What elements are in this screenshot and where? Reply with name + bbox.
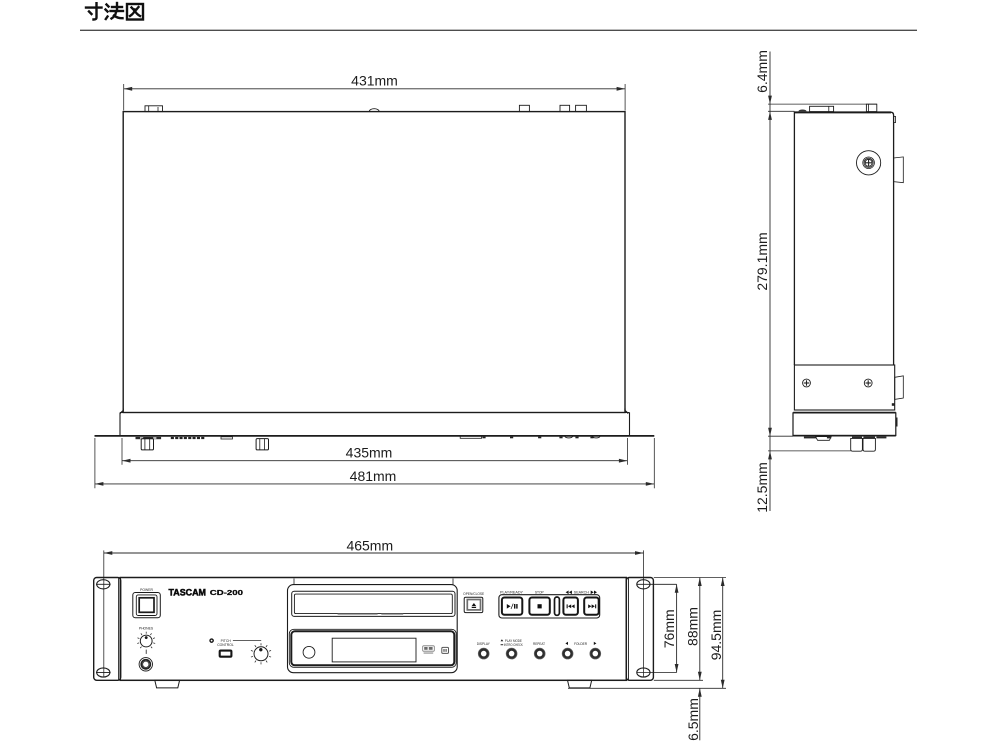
svg-text:TASCAM: TASCAM — [169, 587, 207, 597]
svg-text:OPEN/CLOSE: OPEN/CLOSE — [463, 592, 484, 596]
svg-text:DISPLAY: DISPLAY — [477, 642, 491, 646]
svg-text:PHONES: PHONES — [139, 626, 154, 630]
svg-text:465mm: 465mm — [346, 538, 393, 554]
svg-text:FOLDER: FOLDER — [574, 642, 588, 646]
svg-text:SEARCH: SEARCH — [574, 590, 590, 594]
svg-text:PLAY/READY: PLAY/READY — [500, 590, 524, 594]
svg-text:94.5mm: 94.5mm — [708, 610, 724, 661]
svg-text:6.5mm: 6.5mm — [685, 698, 701, 741]
svg-text:435mm: 435mm — [346, 444, 393, 460]
svg-text:6.4mm: 6.4mm — [754, 50, 770, 93]
svg-text:CONTROL: CONTROL — [217, 643, 234, 647]
svg-text:279.1mm: 279.1mm — [754, 232, 770, 290]
svg-text:76mm: 76mm — [661, 609, 677, 648]
svg-text:REPEAT: REPEAT — [533, 642, 545, 646]
svg-text:POWER: POWER — [140, 588, 153, 592]
svg-text:STOP: STOP — [535, 590, 545, 594]
svg-text:481mm: 481mm — [350, 468, 397, 484]
svg-text:INTRO CHECK: INTRO CHECK — [504, 643, 524, 647]
svg-text:431mm: 431mm — [351, 73, 398, 89]
svg-text:88mm: 88mm — [684, 607, 700, 646]
svg-text:12.5mm: 12.5mm — [754, 462, 770, 513]
svg-text:CD-200: CD-200 — [210, 588, 243, 597]
